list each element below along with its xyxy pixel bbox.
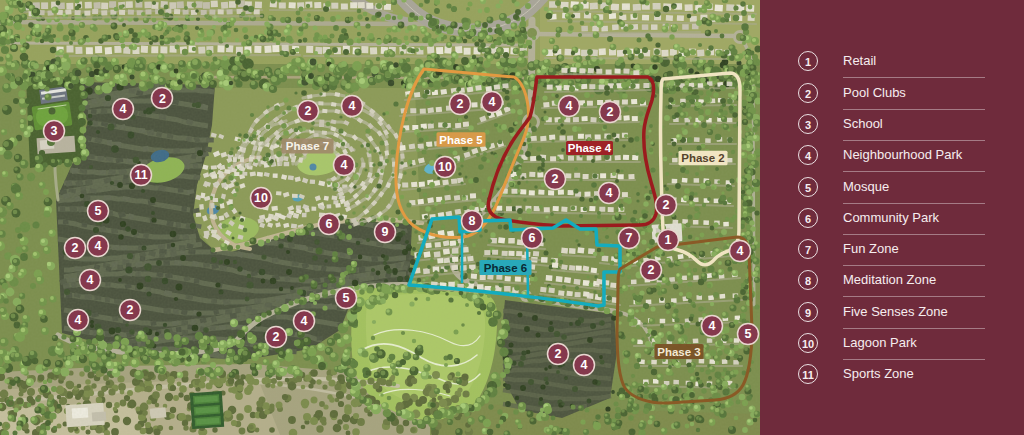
svg-text:2: 2 [648,263,655,277]
svg-text:7: 7 [626,231,633,245]
svg-text:2: 2 [273,330,280,344]
svg-text:Phase 2: Phase 2 [681,152,724,164]
svg-text:4: 4 [75,313,82,327]
svg-text:4: 4 [349,99,356,113]
svg-text:4: 4 [341,158,348,172]
svg-text:3: 3 [51,124,58,138]
svg-text:8: 8 [469,214,476,228]
svg-text:4: 4 [581,358,588,372]
svg-text:4: 4 [709,319,716,333]
svg-text:Phase 5: Phase 5 [439,134,483,146]
svg-text:4: 4 [566,99,573,113]
svg-text:5: 5 [95,204,102,218]
svg-text:Phase 4: Phase 4 [568,142,612,154]
svg-text:2: 2 [457,97,464,111]
svg-text:4: 4 [606,186,613,200]
svg-text:9: 9 [382,225,389,239]
svg-text:4: 4 [737,244,744,258]
svg-text:10: 10 [438,160,452,174]
svg-text:5: 5 [343,291,350,305]
svg-text:6: 6 [529,231,536,245]
svg-text:2: 2 [552,172,559,186]
svg-text:2: 2 [555,347,562,361]
svg-text:4: 4 [489,95,496,109]
svg-text:Phase 6: Phase 6 [484,262,527,274]
svg-text:Phase 7: Phase 7 [286,140,329,152]
svg-text:4: 4 [87,273,94,287]
svg-text:11: 11 [134,168,147,182]
svg-text:2: 2 [159,92,166,106]
svg-text:2: 2 [72,241,79,255]
svg-text:2: 2 [127,303,134,317]
svg-text:4: 4 [120,102,127,116]
svg-text:10: 10 [254,191,268,205]
svg-text:2: 2 [663,198,670,212]
svg-text:1: 1 [665,233,672,247]
svg-text:6: 6 [326,217,333,231]
svg-text:2: 2 [305,104,312,118]
svg-text:2: 2 [607,105,614,119]
svg-text:Phase 3: Phase 3 [657,346,700,358]
svg-text:5: 5 [745,327,752,341]
svg-text:4: 4 [95,239,102,253]
svg-text:4: 4 [301,314,308,328]
